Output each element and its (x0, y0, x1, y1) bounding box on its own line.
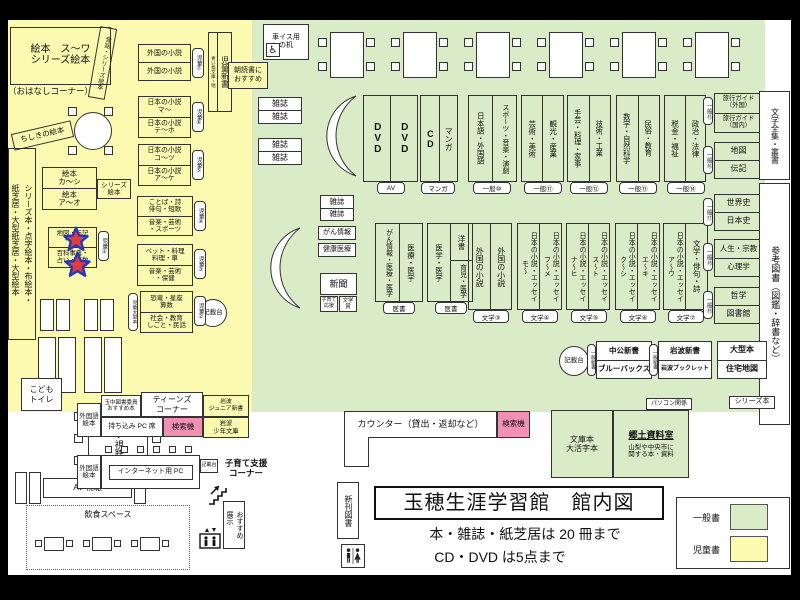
literary-prize-box: 文学賞 (339, 296, 357, 312)
writing-stand-general: 記載台 (559, 346, 589, 376)
tamaho-jhs-recommend-box: 玉中図書委員 おすすめ本 (101, 395, 141, 417)
health-care-box: 健康医療 (318, 243, 356, 257)
library-floor-map: { "colors":{"children_bg":"#fbfab0","gen… (0, 0, 800, 600)
chair (114, 540, 121, 547)
local-history-title: 郷土資料室 (628, 430, 673, 440)
restroom-icon (341, 544, 365, 568)
shelf-medical-1: がん情報・医療・医学 医療・医学 (375, 223, 423, 302)
cafe-table (44, 537, 64, 551)
bookshelf (84, 299, 98, 331)
legend-children-label: 児童書 (693, 543, 720, 556)
shelf-bungaku-4: 日本の小説・エッセイ モ～ 日本の小説・エッセイ フ～メ (517, 223, 562, 310)
chair (512, 38, 521, 47)
chair (464, 38, 473, 47)
study-table (695, 32, 729, 78)
tab-ippan-shinsho: 一般新書 (587, 344, 596, 376)
chair (464, 62, 473, 71)
tab-ippan-10: 一般⑩ (473, 182, 511, 194)
shelf-japanese-novels-ma: 日本の小説 マ～ 日本の小説 テ～ホ (138, 96, 191, 138)
tab-jido-6: 児童⑥ (192, 102, 204, 132)
tab-ippan-18: 一般⑱ (703, 243, 713, 271)
cafe-table (92, 537, 112, 551)
dvd-shelf: DVD DVD (363, 95, 418, 182)
chair (105, 446, 112, 453)
shelf-japanese-novels-ko: 日本の小説 コ～ツ 日本の小説 ア～ケ (138, 144, 191, 186)
legend-general-row: 一般書 (693, 504, 789, 530)
counter-wing (344, 437, 369, 467)
chair (318, 62, 327, 71)
bookshelf (29, 472, 41, 504)
eating-space: 飲食スペース (26, 505, 190, 570)
study-table (622, 32, 656, 78)
study-table (330, 32, 364, 78)
shelf-pets-cooking: ペット・料理 料理・車 音楽・芸術 ・保健 (137, 244, 193, 286)
study-table (403, 32, 437, 78)
tab-ippan-13: 一般⑬ (619, 182, 657, 194)
eating-space-label: 飲食スペース (27, 511, 189, 520)
wheelchair-desk-box: 車イス用 の机 ♿ (263, 24, 309, 60)
kids-toilet-label: こども トイレ (21, 378, 62, 411)
chair (104, 107, 113, 116)
shelf-ippan-14: 税金・福祉 政治・法律 (664, 95, 706, 182)
shelf-foreign-novels-children: 外国の小説 外国の小説 (138, 44, 191, 81)
writing-stand-label: 記載台 (200, 459, 218, 473)
chair (366, 38, 375, 47)
shelf-bungaku-6: 日本の小説・エッセイ ク～シ 日本の小説・エッセイ エ～キ (615, 223, 660, 310)
shelf-dinosaurs-society: 恐竜・星座 算数 社会・教育 しごと・民話 (140, 291, 193, 333)
bookshelf (84, 337, 102, 393)
recommended-display-shelf: おすすめ 展示 (223, 501, 245, 549)
shelf-ippan-10: 日本語・外国語 スポーツ・音楽・演劇 (468, 95, 517, 182)
legend-children-row: 児童書 (693, 536, 789, 562)
tab-bungaku-5: 文学⑤ (571, 310, 607, 323)
tab-ippan-12: 一般⑫ (570, 182, 608, 194)
shelf-world-japan-history: 世界史 日本史 (714, 194, 763, 231)
chair (83, 540, 90, 547)
crescent-bench (322, 92, 360, 180)
chair (121, 446, 128, 453)
aoitori-bunko-label: 青い鳥文庫・他 (209, 33, 218, 111)
shelf-words-poetry: ことば・詩 俳句・短歌 音楽・芸術 ・スポーツ (137, 196, 193, 236)
cancer-info-box: がん情報 (318, 226, 356, 240)
new-books-shelf: 新刊図書 (337, 482, 359, 539)
tab-jido-3: 児童③ (194, 249, 206, 279)
literature-collection-strip: 文学全集・叢書 (759, 91, 790, 180)
study-table (549, 32, 583, 78)
chair (391, 38, 400, 47)
chair (137, 446, 144, 453)
chair (391, 62, 400, 71)
tab-ippan-17: 一般⑰ (703, 198, 713, 226)
tab-bungaku-3: 文学③ (473, 310, 509, 323)
local-history-room: 郷土資料室 山梨や中央市に 関する本・資料 (613, 410, 689, 478)
tab-ippan-11: 一般⑪ (524, 182, 562, 194)
tab-manga: マンガ (421, 182, 455, 194)
chair (585, 38, 594, 47)
chair (537, 62, 546, 71)
chair (68, 107, 77, 116)
byod-pc-seats-box: 持ち込み PC 席 (101, 417, 163, 437)
iwanami-junior-box: 岩波 ジュニア新書 (203, 395, 249, 417)
chair (658, 38, 667, 47)
teens-corner-box: ティーンズ コーナー (141, 392, 203, 417)
chair (537, 38, 546, 47)
tab-bungaku-4: 文学④ (522, 310, 558, 323)
tab-av: AV (377, 182, 405, 194)
tab-bungaku-6: 文学⑥ (620, 310, 656, 323)
chair (104, 146, 113, 155)
shelf-bungaku-3: 外国の小説 外国の小説 (468, 223, 512, 310)
bookshelf (40, 299, 54, 331)
tab-jido-5: 児童⑤ (192, 150, 204, 180)
series-picture-books-box: シリーズ 絵本 (97, 179, 131, 199)
childcare-support-corner: 子育て支援 コーナー (218, 455, 274, 483)
series-books-label: シリーズ本 (729, 396, 775, 409)
shelf-travel-guides: 旅行ガイド （外国） 旅行ガイド （国内） (714, 93, 763, 133)
tab-jido-4: 児童④ (194, 201, 206, 231)
chair (66, 540, 73, 547)
shelf-religion-psychology: 人生・宗教 心理学 (714, 239, 763, 277)
shelf-ippan-13: 数学・自然科学 民俗・教育 (616, 95, 660, 182)
chair (169, 446, 176, 453)
map-title: 玉穂生涯学習館 館内図 (374, 486, 664, 520)
tab-ippan-16: 一般⑯ (703, 146, 713, 174)
circulation-counter: カウンター（貸出・返却など） (344, 411, 497, 438)
chair (512, 62, 521, 71)
foreign-picture-books-box: 外国語 絵本 (77, 403, 101, 437)
legend-general-swatch (730, 504, 768, 530)
round-table (74, 112, 112, 150)
shelf-philosophy-library: 哲学 図書館 (714, 287, 763, 324)
childcare-support-books-box: 子育て 応援 (320, 296, 338, 312)
magazine-rack: 雑誌 雑誌 (258, 97, 302, 124)
chair (585, 62, 594, 71)
shelf-medical-2: 医学・医学 洋書 育児・医学 (427, 223, 473, 302)
chair (610, 62, 619, 71)
chair (318, 38, 327, 47)
study-table (476, 32, 510, 78)
shelf-bungaku-7: 日本の小説・エッセイ ア～ウ 文学・俳句・詩 (663, 223, 708, 310)
cafe-table (140, 537, 160, 551)
paperback-large-print-room: 文庫本 大活字本 (551, 410, 613, 478)
tab-children-large-books: 児童大型本 (128, 293, 138, 331)
chair (439, 62, 448, 71)
bookshelf (15, 472, 27, 504)
chair (153, 446, 160, 453)
pc-related-label: パソコン関係 (646, 398, 692, 410)
bookshelf (56, 299, 70, 331)
iwanami-shonen-box: 岩波 少年文庫 (203, 417, 249, 438)
chair (35, 540, 42, 547)
tab-jido-1: 児童① (98, 231, 109, 261)
tab-ippan-19: 一般⑲ (703, 291, 713, 319)
loan-rule-books: 本・雑誌・紙芝居は 20 冊まで (395, 527, 655, 543)
chair (610, 38, 619, 47)
chair (131, 540, 138, 547)
chuko-shinsho-shelf: 中公新書 ブルーバックス (596, 341, 652, 379)
chair (185, 446, 192, 453)
tab-jido-7: 児童⑦ (192, 48, 204, 78)
tab-isho-1: 医書 (383, 302, 415, 314)
loan-rule-av: CD・DVD は5点まで (380, 550, 620, 566)
series-braille-cloth-books-shelf: シリーズ本・点字絵本・布絵本・ 紙芝居・大型紙芝居・大型絵本 (8, 148, 36, 340)
elevator-icon (197, 526, 223, 550)
legend: 一般書 児童書 (676, 497, 790, 569)
local-history-desc: 山梨や中央市に 関する本・資料 (628, 444, 674, 459)
shelf-bungaku-5: 日本の小説・エッセイ ナ～ヒ 日本の小説・エッセイ ス～ト (566, 223, 610, 310)
search-terminal: 検索機 (163, 417, 203, 437)
tab-jido-2: 児童② (194, 296, 206, 326)
bookshelf (104, 337, 122, 393)
internet-pc-label: インターネット用 PC (109, 465, 193, 480)
chair (683, 38, 692, 47)
chair (658, 62, 667, 71)
chair (366, 62, 375, 71)
large-books-shelf: 大型本 住宅地図 (717, 341, 767, 379)
cd-manga-shelf: CD マンガ (420, 95, 458, 182)
internet-pc-table: インターネット用 PC (101, 455, 200, 489)
shelf-ippan-11: 芸術・美術 観光・産業 (521, 95, 564, 182)
tab-bungaku-7: 文学⑦ (668, 310, 704, 323)
chair (731, 62, 740, 71)
search-terminal: 検索機 (497, 411, 530, 438)
legend-general-label: 一般書 (693, 511, 720, 524)
iwanami-shinsho-shelf: 岩波新書 岩波ブックレット (658, 341, 712, 379)
tab-ippan-shinsho: 一般新書 (649, 344, 658, 376)
picture-books-shelf: 絵本 カ～シ 絵本 ア～オ (42, 167, 97, 210)
chair (731, 38, 740, 47)
tab-isho-2: 医書 (435, 302, 467, 314)
tab-ippan-14: 一般⑭ (667, 182, 705, 194)
newspaper-box: 新聞 (320, 273, 357, 295)
magazine-rack: 雑誌 雑誌 (320, 195, 354, 221)
star-icon (62, 226, 90, 254)
morning-reading-recommend-box: 朝読書に おすすめ (228, 62, 268, 89)
wheelchair-icon: ♿ (266, 43, 280, 57)
tab-ippan-15: 一般⑮ (703, 97, 713, 125)
foreign-picture-books-box: 外国語 絵本 (77, 455, 101, 489)
chair (68, 146, 77, 155)
legend-children-swatch (730, 536, 768, 562)
shelf-maps-biography: 地図 伝記 (714, 142, 763, 179)
crescent-bench (262, 224, 308, 312)
star-icon (63, 251, 92, 280)
chair (683, 62, 692, 71)
bookshelf (100, 299, 114, 331)
chair (439, 38, 448, 47)
magazine-rack: 雑誌 雑誌 (258, 138, 302, 165)
chair (162, 540, 169, 547)
shelf-ippan-12: 手芸・料理・家事 技術・工業 (567, 95, 611, 182)
reference-books-strip: 参考図書（図鑑・辞書など） (759, 183, 790, 425)
